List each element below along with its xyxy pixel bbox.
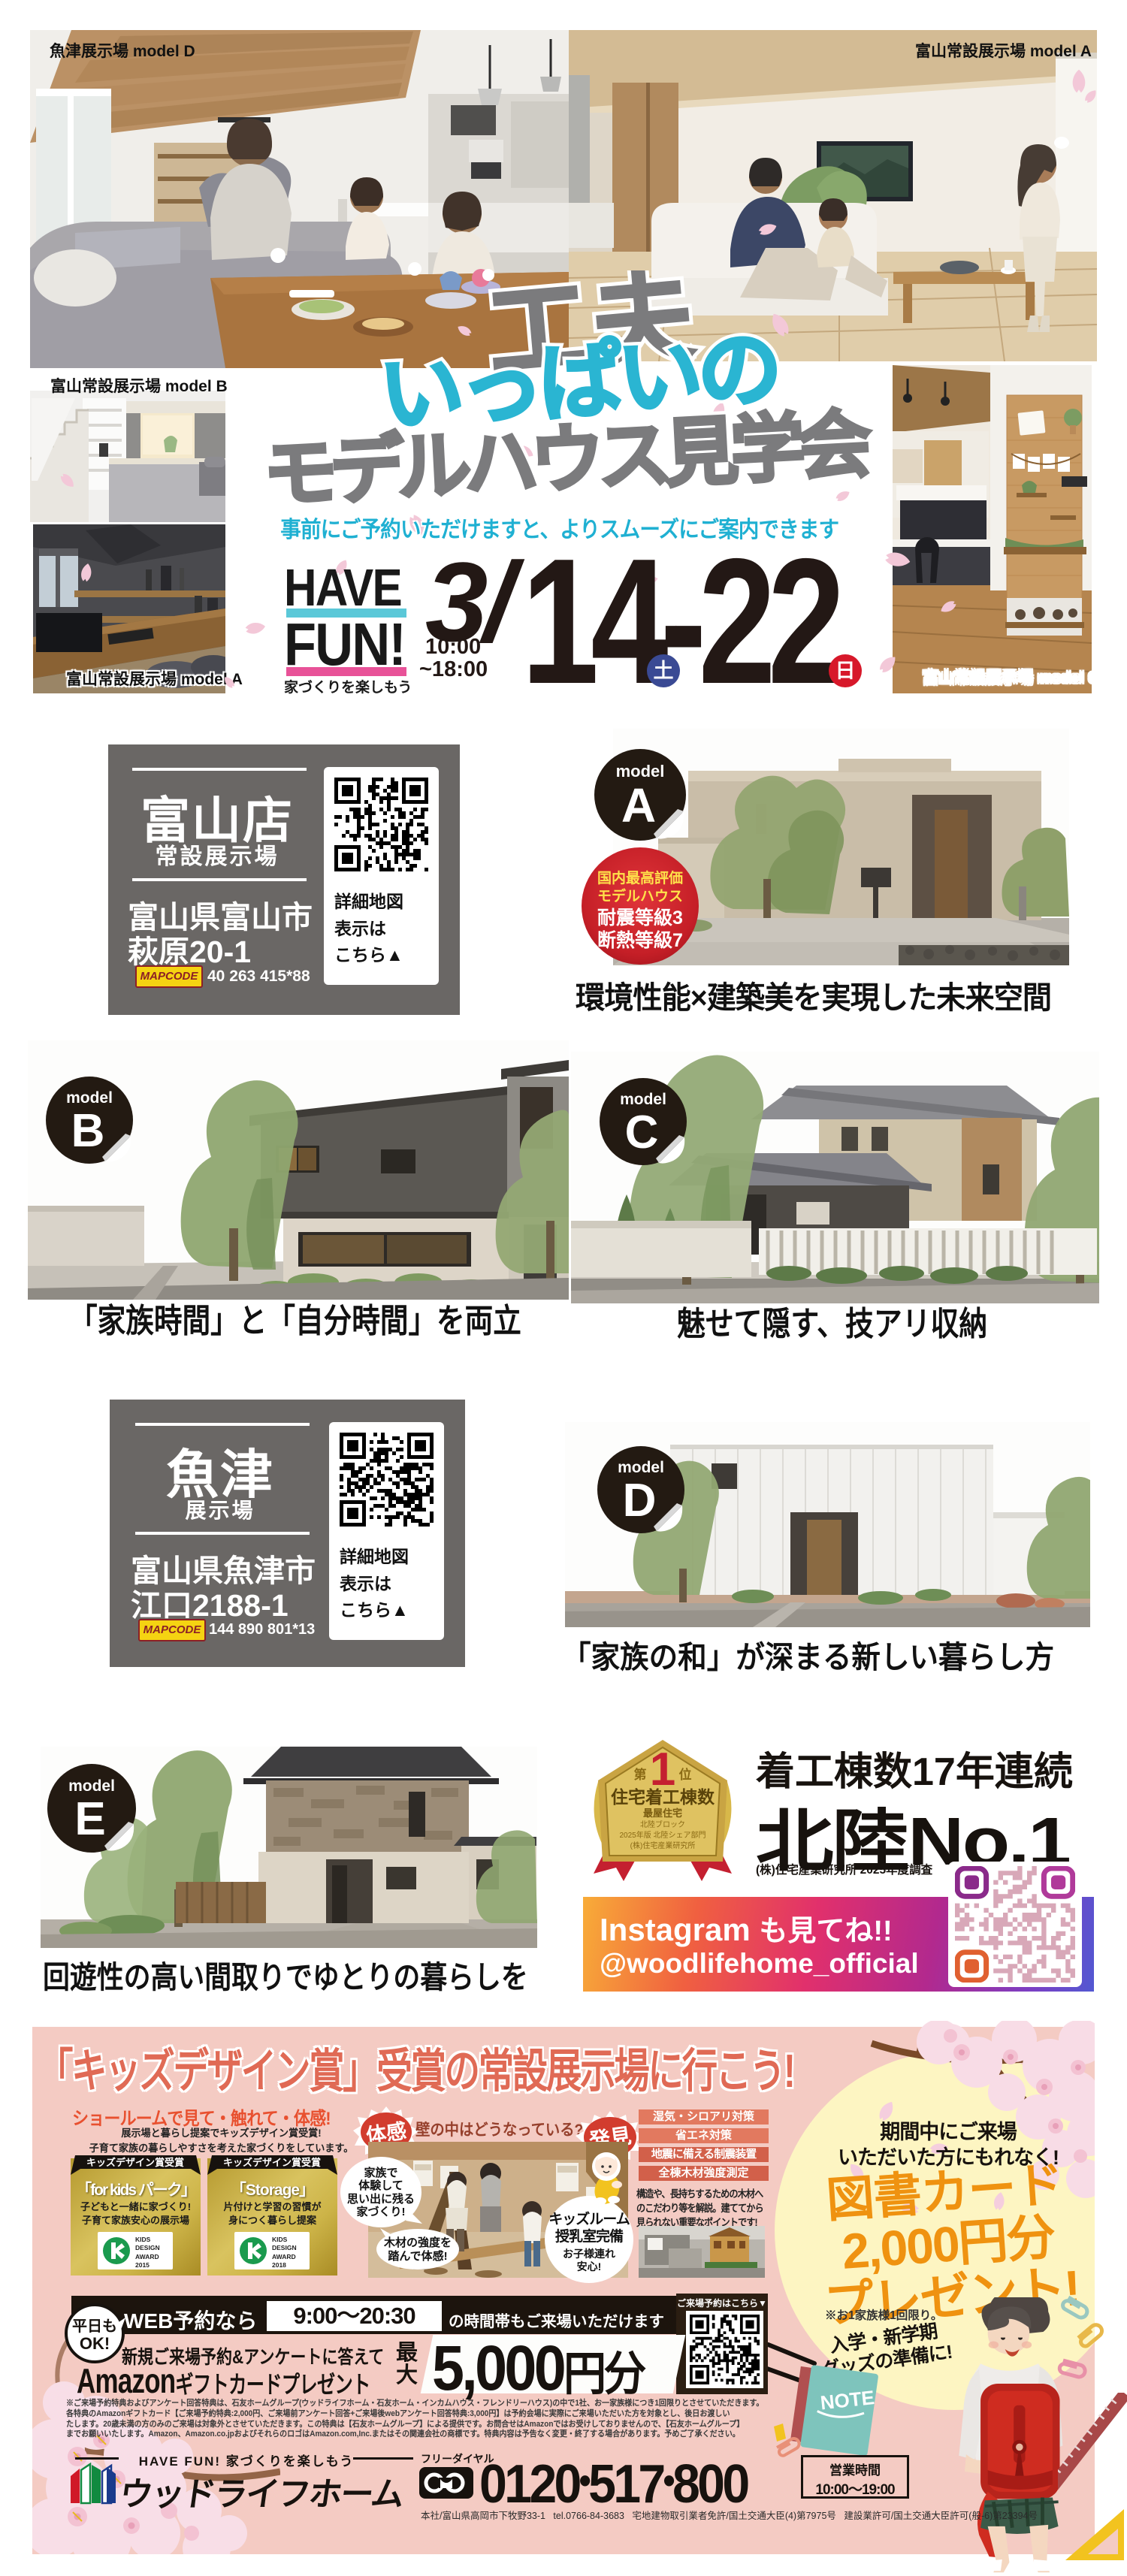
- svg-text:model: model: [618, 1459, 664, 1476]
- svg-text:住宅着工棟数: 住宅着工棟数: [611, 1787, 715, 1807]
- svg-text:位: 位: [679, 1767, 692, 1782]
- svg-text:E: E: [74, 1793, 105, 1845]
- svg-text:B: B: [71, 1105, 105, 1157]
- svg-text:平日も: 平日も: [72, 2318, 117, 2335]
- svg-text:断熱等級7: 断熱等級7: [597, 929, 683, 951]
- svg-text:model: model: [68, 1777, 115, 1795]
- svg-text:A: A: [621, 778, 656, 832]
- svg-text:model: model: [66, 1089, 113, 1107]
- svg-text:(株)住宅産業研究所: (株)住宅産業研究所: [630, 1841, 696, 1850]
- svg-text:国内最高評価: 国内最高評価: [597, 869, 683, 886]
- svg-text:D: D: [623, 1475, 657, 1527]
- svg-text:キッズデザイン賞受賞: キッズデザイン賞受賞: [223, 2157, 321, 2168]
- svg-text:C: C: [625, 1107, 659, 1158]
- svg-text:耐震等級3: 耐震等級3: [597, 907, 683, 929]
- svg-text:最屋住宅: 最屋住宅: [643, 1807, 682, 1819]
- svg-text:model: model: [620, 1091, 666, 1108]
- svg-text:モデルハウス見学会: モデルハウス見学会: [261, 402, 875, 514]
- svg-text:第: 第: [634, 1767, 647, 1782]
- svg-text:2025年版 北陸シェア部門: 2025年版 北陸シェア部門: [619, 1830, 706, 1840]
- svg-text:OK!: OK!: [80, 2334, 110, 2353]
- svg-text:キッズデザイン賞受賞: キッズデザイン賞受賞: [86, 2157, 184, 2168]
- svg-text:モデルハウス: モデルハウス: [597, 887, 683, 904]
- svg-text:北陸ブロック: 北陸ブロック: [640, 1820, 685, 1829]
